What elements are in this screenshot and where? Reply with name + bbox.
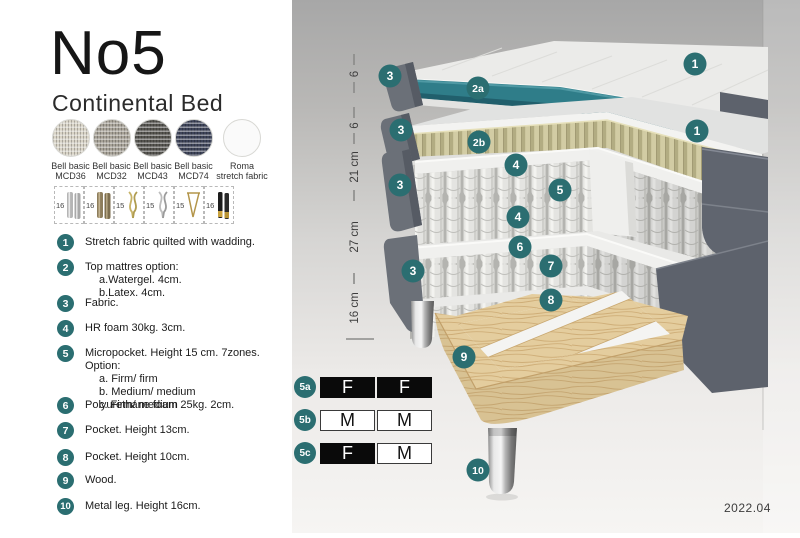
spec-item-6: 6 Polyurethane foam 25kg. 2cm. [57, 397, 297, 414]
leg-cylinder-bronze-icon [94, 190, 113, 220]
leg-options: 16 16 15 15 [54, 186, 234, 224]
svg-text:1: 1 [694, 124, 701, 138]
backdrop-seam [763, 0, 800, 533]
callout-3-third: 3 [389, 174, 412, 197]
leg-twisted-silver-icon [154, 190, 173, 220]
firmness-badge: 5a [294, 376, 316, 398]
callout-3-fourth: 3 [402, 260, 425, 283]
svg-text:21 cm: 21 cm [349, 151, 361, 182]
fabric-swatch-roma: Romastretch fabric [214, 119, 270, 181]
fabric-swatch-icon [93, 119, 131, 157]
callout-6: 6 [509, 236, 532, 259]
svg-text:4: 4 [513, 158, 520, 172]
spec-number-badge: 7 [57, 422, 74, 439]
callout-2b: 2b [468, 131, 491, 154]
callout-8: 8 [540, 289, 563, 312]
dimension-labels: 6 6 21 cm 27 cm 16 cm [349, 71, 361, 324]
callout-3-second: 3 [390, 119, 413, 142]
spec-item-10: 10 Metal leg. Height 16cm. [57, 498, 297, 515]
svg-text:6: 6 [517, 240, 524, 254]
svg-text:6: 6 [349, 122, 361, 128]
spec-item-7: 7 Pocket. Height 13cm. [57, 422, 297, 439]
svg-text:27 cm: 27 cm [349, 221, 361, 252]
fabric-swatch-mcd74: Bell basicMCD74 [173, 119, 214, 181]
spec-item-2: 2 Top mattres option: a.Watergel. 4cm. b… [57, 259, 297, 300]
firmness-row-5b: 5b M M [294, 409, 434, 431]
spec-panel: No5 Continental Bed Bell basicMCD36 Bell… [0, 0, 292, 533]
firmness-cell: M [377, 410, 432, 431]
firmness-cell: M [377, 443, 432, 464]
fabric-swatches: Bell basicMCD36 Bell basicMCD32 Bell bas… [50, 119, 270, 181]
svg-text:3: 3 [397, 178, 404, 192]
spec-number-badge: 5 [57, 345, 74, 362]
spec-item-8: 8 Pocket. Height 10cm. [57, 449, 297, 466]
fabric-swatch-icon [134, 119, 172, 157]
firmness-cell: F [377, 377, 432, 398]
svg-text:8: 8 [548, 293, 555, 307]
svg-text:16 cm: 16 cm [349, 292, 361, 323]
fabric-swatch-mcd43: Bell basicMCD43 [132, 119, 173, 181]
leg-twisted-gold-icon [124, 190, 143, 220]
firmness-row-5c: 5c F M [294, 442, 434, 464]
firmness-row-5a: 5a F F [294, 376, 434, 398]
firmness-badge: 5b [294, 409, 316, 431]
svg-text:3: 3 [387, 69, 394, 83]
svg-text:1: 1 [692, 57, 699, 71]
spec-number-badge: 2 [57, 259, 74, 276]
svg-text:3: 3 [410, 264, 417, 278]
callout-4-upper: 4 [505, 154, 528, 177]
fabric-swatch-mcd36: Bell basicMCD36 [50, 119, 91, 181]
spec-item-3: 3 Fabric. [57, 295, 297, 312]
spec-number-badge: 10 [57, 498, 74, 515]
callout-2a: 2a [467, 77, 490, 100]
firmness-cell: F [320, 377, 375, 398]
bed-diagram-panel: 6 6 21 cm 27 cm 16 cm 1 3 2a 3 2b 1 4 5 … [292, 0, 800, 533]
callout-10: 10 [467, 459, 490, 482]
spec-number-badge: 9 [57, 472, 74, 489]
spec-number-badge: 8 [57, 449, 74, 466]
page-title: No5 [50, 18, 167, 89]
spec-number-badge: 6 [57, 397, 74, 414]
leg-cylinder-black-gold-icon [214, 190, 233, 220]
svg-text:6: 6 [349, 71, 361, 77]
svg-text:2b: 2b [473, 137, 485, 149]
callout-3-top: 3 [379, 65, 402, 88]
callout-5: 5 [549, 179, 572, 202]
metal-leg-back [411, 301, 434, 348]
spec-number-badge: 4 [57, 320, 74, 337]
firmness-badge: 5c [294, 442, 316, 464]
leg-option-cylinder-black-gold: 16 [204, 186, 234, 224]
svg-text:5: 5 [557, 183, 564, 197]
leg-cylinder-silver-icon [64, 190, 83, 220]
callout-1-top: 1 [684, 53, 707, 76]
svg-text:9: 9 [461, 350, 468, 364]
leg-option-twisted-silver: 15 [144, 186, 174, 224]
callout-7: 7 [540, 255, 563, 278]
callout-4-lower: 4 [507, 206, 530, 229]
spec-item-1: 1 Stretch fabric quilted with wadding. [57, 234, 297, 251]
leg-option-hairpin-gold: 15 [174, 186, 204, 224]
fabric-swatch-mcd32: Bell basicMCD32 [91, 119, 132, 181]
version-date: 2022.04 [724, 501, 771, 515]
leg-option-cylinder-silver: 16 [54, 186, 84, 224]
spec-number-badge: 1 [57, 234, 74, 251]
fabric-swatch-icon [223, 119, 261, 157]
spec-item-9: 9 Wood. [57, 472, 297, 489]
spec-number-badge: 3 [57, 295, 74, 312]
metal-leg-front [486, 428, 518, 501]
leg-option-twisted-gold: 15 [114, 186, 144, 224]
fabric-swatch-icon [175, 119, 213, 157]
leg-hairpin-gold-icon [184, 190, 203, 220]
fabric-swatch-icon [52, 119, 90, 157]
svg-text:7: 7 [548, 259, 555, 273]
firmness-cell: F [320, 443, 375, 464]
svg-text:3: 3 [398, 123, 405, 137]
callout-9: 9 [453, 346, 476, 369]
svg-text:2a: 2a [472, 83, 484, 95]
svg-text:10: 10 [472, 465, 484, 477]
leg-option-cylinder-bronze: 16 [84, 186, 114, 224]
spec-item-4: 4 HR foam 30kg. 3cm. [57, 320, 297, 337]
page-subtitle: Continental Bed [52, 90, 223, 117]
callout-1-second: 1 [686, 120, 709, 143]
micropocket-springs [415, 160, 598, 245]
svg-text:4: 4 [515, 210, 522, 224]
firmness-cell: M [320, 410, 375, 431]
